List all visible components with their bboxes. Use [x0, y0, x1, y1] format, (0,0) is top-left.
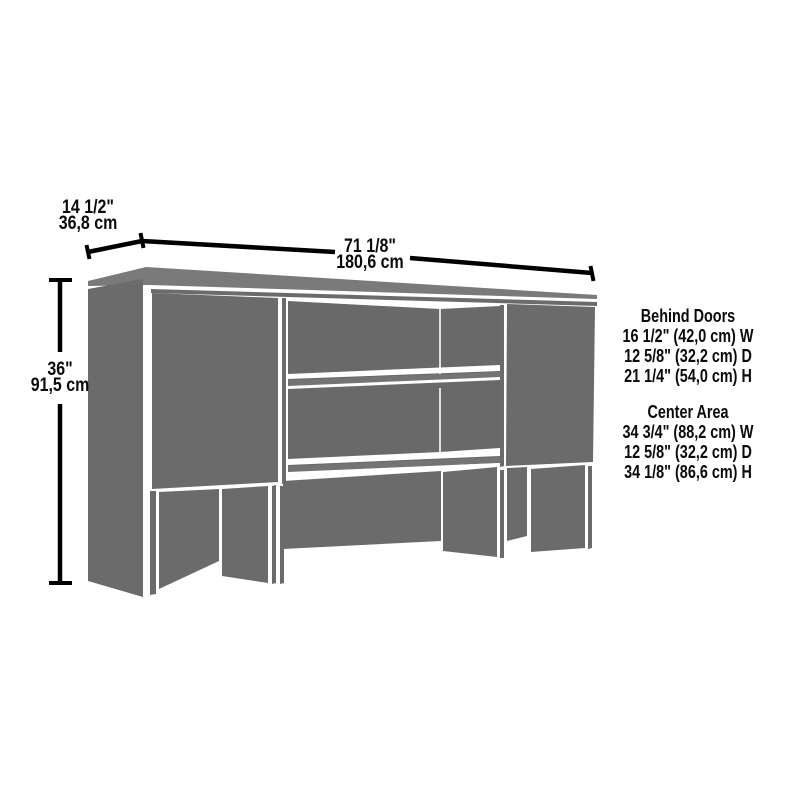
center-left-leg-panel	[222, 486, 268, 583]
right-partition-edge	[500, 305, 504, 467]
left-side-panel	[88, 279, 143, 597]
depth-tick-left	[87, 245, 90, 259]
interior-specs-block: Behind Doors 16 1/2" (42,0 cm) W 12 5/8"…	[612, 306, 764, 482]
behind-doors-height: 21 1/4" (54,0 cm) H	[612, 366, 764, 386]
depth-dimension-label: 14 1/2" 36,8 cm	[36, 200, 140, 232]
right-door-panel	[506, 304, 595, 466]
depth-dimension-line	[87, 233, 144, 259]
behind-doors-specs: Behind Doors 16 1/2" (42,0 cm) W 12 5/8"…	[612, 306, 764, 386]
height-cm: 91,5 cm	[8, 378, 112, 394]
center-right-leg-side-face	[443, 467, 497, 557]
lower-back-panel-left	[159, 489, 219, 589]
height-dimension-line	[49, 280, 72, 583]
center-area-specs: Center Area 34 3/4" (88,2 cm) W 12 5/8" …	[612, 402, 764, 482]
lower-back-panel-right	[531, 465, 585, 552]
center-right-leg-front-edge	[500, 470, 504, 558]
width-tick-right	[591, 266, 594, 281]
width-dimension-label: 71 1/8" 180,6 cm	[318, 239, 422, 271]
center-interior-back-panel	[288, 301, 500, 476]
center-area-height: 34 1/8" (86,6 cm) H	[612, 462, 764, 482]
center-left-partition-leg	[280, 486, 284, 584]
width-cm: 180,6 cm	[318, 255, 422, 271]
depth-cm: 36,8 cm	[36, 216, 140, 232]
right-leg-outer-edge	[588, 466, 592, 549]
right-leg-inner-face	[507, 467, 527, 541]
center-left-leg-side-edge	[272, 485, 276, 584]
left-door-panel	[152, 293, 278, 489]
center-area-width: 34 3/4" (88,2 cm) W	[612, 422, 764, 442]
behind-doors-heading: Behind Doors	[612, 306, 764, 326]
behind-doors-depth: 12 5/8" (32,2 cm) D	[612, 346, 764, 366]
lower-back-panel-center	[283, 471, 441, 549]
height-dimension-label: 36" 91,5 cm	[8, 362, 112, 394]
center-area-heading: Center Area	[612, 402, 764, 422]
center-area-depth: 12 5/8" (32,2 cm) D	[612, 442, 764, 462]
left-partition-edge	[282, 298, 286, 484]
left-front-leg-edge	[150, 491, 156, 595]
product-dimension-diagram: 14 1/2" 36,8 cm 71 1/8" 180,6 cm 36" 91,…	[0, 0, 800, 800]
specs-block-gap	[612, 386, 764, 402]
behind-doors-width: 16 1/2" (42,0 cm) W	[612, 326, 764, 346]
